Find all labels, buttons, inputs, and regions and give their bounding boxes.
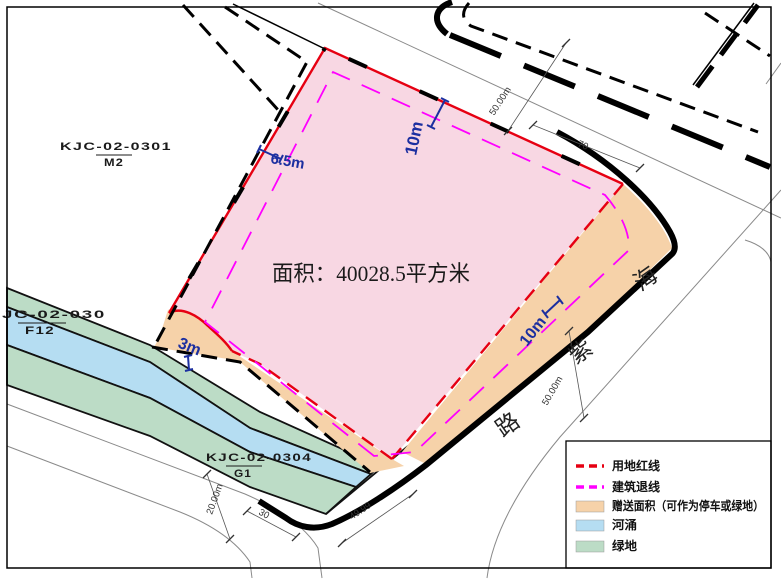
parcel-code-0304: KJC-02-0304 <box>206 452 312 464</box>
parcel-code-0303: JC-02-030 <box>2 309 106 321</box>
legend-label-green: 绿地 <box>612 538 637 553</box>
site-plan-page: 50.00m 70 50.00m 49.99 30 20.00m 10m 6.5… <box>0 0 781 580</box>
legend-label-redline: 用地红线 <box>611 458 660 473</box>
legend-label-setback: 建筑退线 <box>611 479 660 494</box>
legend-swatch-river <box>576 520 604 531</box>
legend-label-river: 河涌 <box>611 517 637 532</box>
parcel-zone-0304: G1 <box>234 468 252 480</box>
site-plan-drawing: 50.00m 70 50.00m 49.99 30 20.00m 10m 6.5… <box>0 0 781 580</box>
legend-label-gift: 赠送面积（可作为停车或绿地） <box>612 498 764 513</box>
legend: 用地红线 建筑退线 赠送面积（可作为停车或绿地） 河涌 绿地 <box>566 441 771 568</box>
parcel-area-label: 面积：40028.5平方米 <box>272 261 470 286</box>
parcel-zone-0303: F12 <box>25 325 55 337</box>
parcel-zone-0301: M2 <box>104 157 124 169</box>
parcel-code-0301: KJC-02-0301 <box>60 141 172 153</box>
legend-swatch-green <box>576 541 604 552</box>
legend-swatch-gift <box>576 501 604 512</box>
